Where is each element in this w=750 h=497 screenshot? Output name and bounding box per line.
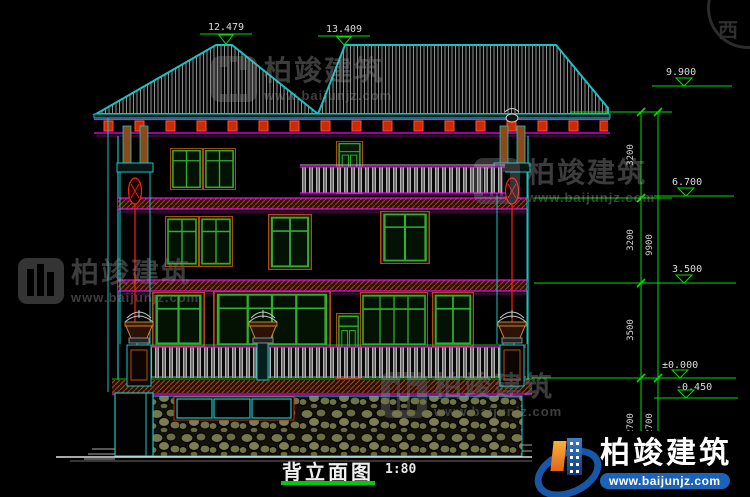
floor2-windows (166, 212, 430, 270)
brand-logo: 柏竣建筑 www.baijunjz.com (532, 431, 750, 497)
floor3-railing (300, 165, 505, 195)
elev-eave-label: 9.900 (666, 67, 696, 78)
elev-grade-label: -0.450 (676, 382, 712, 393)
column-right (494, 109, 530, 345)
elevation-marker-grade: -0.450 (654, 382, 738, 398)
title-underline (281, 481, 375, 485)
floor1-railing (137, 343, 526, 380)
left-annex (84, 393, 153, 459)
elev-f3-label: 6.700 (672, 177, 702, 188)
ridge-marker-right: 13.409 (318, 24, 370, 45)
window (269, 215, 312, 270)
foundation-wall (153, 396, 522, 456)
brand-logo-name: 柏竣建筑 (600, 439, 732, 469)
elevation-marker-f2: 3.500 (652, 264, 736, 283)
elevation-marker-f3: 6.700 (654, 177, 734, 196)
dim-2f: 3200 (626, 229, 636, 251)
drawing-scale: 1:80 (385, 462, 416, 477)
brand-logo-url: www.baijunjz.com (600, 473, 730, 489)
elevation-drawing: 12.479 13.409 3200 3200 3500 2700 9900 2… (0, 0, 750, 497)
dim-total: 9900 (645, 234, 655, 256)
cad-canvas: 12.479 13.409 3200 3200 3500 2700 9900 2… (0, 0, 750, 497)
ridge-marker-left: 12.479 (200, 22, 252, 44)
brand-logo-icon (532, 433, 596, 495)
window (361, 293, 428, 348)
roof-right (318, 45, 608, 114)
window (166, 217, 199, 267)
eave-band (94, 114, 610, 136)
dimension-chain-inner: 3200 3200 3500 2700 (626, 108, 645, 478)
window (200, 217, 233, 267)
window (170, 148, 202, 189)
window (381, 212, 430, 264)
logo-tower-blue (567, 438, 582, 475)
ridge-right-label: 13.409 (326, 24, 362, 35)
compass-west-label: 西 (718, 14, 738, 43)
elevation-marker-eave: 9.900 (652, 67, 732, 86)
dim-3f: 3200 (626, 144, 636, 166)
ridge-left-label: 12.479 (208, 22, 244, 33)
elev-f1-label: ±0.000 (662, 360, 698, 371)
roof-left (96, 45, 318, 114)
floor-band-3 (118, 198, 528, 212)
window (203, 148, 235, 189)
elev-f2-label: 3.500 (672, 264, 702, 275)
dimension-chain-outer: 9900 2700 (645, 108, 662, 478)
dim-1f: 3500 (626, 319, 636, 341)
ground-band (112, 379, 532, 394)
window (433, 293, 474, 347)
window (153, 293, 204, 347)
column-left (117, 126, 153, 344)
planter (125, 310, 153, 386)
